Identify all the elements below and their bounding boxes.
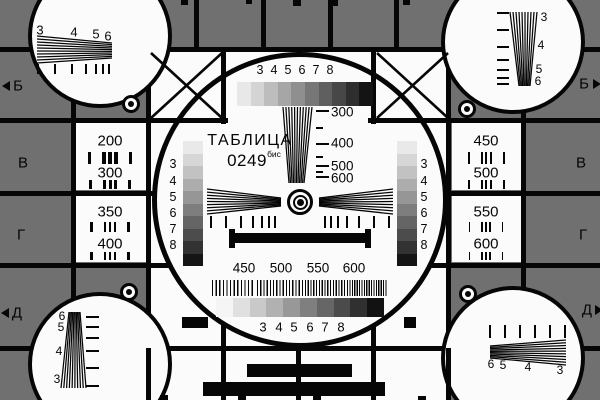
cell-600-tick [469, 252, 471, 260]
target-icon-bottom-right [459, 285, 477, 303]
grayscale-step [350, 298, 367, 317]
grayscale-step [183, 216, 203, 229]
cell-450-tick [503, 152, 505, 164]
bot-ramp-4-label: 4 [275, 321, 282, 334]
cell-600-tick [485, 252, 487, 260]
grayscale-step [397, 254, 417, 267]
tr-ticks [497, 77, 509, 79]
mid-left-fan-line [207, 202, 281, 203]
leftcol-4-label: 4 [170, 175, 177, 188]
mid-left-ticks [268, 216, 270, 228]
mid-left-ticks [225, 216, 227, 228]
scale-ticks-long [316, 110, 329, 112]
cell-400-tick [114, 252, 117, 260]
grayscale-step [278, 82, 292, 106]
grayscale-step [397, 179, 417, 192]
cell-350-label: 350 [97, 205, 122, 220]
tl-wedge-5-label: 5 [92, 28, 99, 41]
mid-right-ticks [330, 216, 332, 228]
scale-ticks-short [316, 171, 323, 173]
top-ramp-5-label: 5 [285, 64, 292, 77]
tl-ticks [95, 64, 97, 74]
cell-550-tick [485, 222, 487, 232]
cell-200-tick [108, 152, 112, 164]
bottom-grayscale-ramp [216, 298, 384, 317]
top-ramp-7-label: 7 [313, 64, 320, 77]
cell-350-tick [127, 222, 130, 232]
bl-wedge-3-label: 3 [54, 373, 61, 385]
rightcol-6-label: 6 [421, 207, 428, 220]
rightcol-8-label: 8 [421, 239, 428, 252]
cell-350-tick [114, 222, 117, 232]
card-number: 0249 [227, 151, 267, 171]
right-col-grayscale-ramp [397, 141, 417, 266]
grayscale-step [397, 229, 417, 242]
grayscale-step [183, 204, 203, 217]
right-arrow-icon [593, 79, 600, 89]
edge-fragment [313, 395, 321, 400]
grayscale-step [305, 82, 319, 106]
mid-right-ticks [358, 216, 360, 228]
grayscale-step [183, 154, 203, 167]
leftcol-8-label: 8 [170, 239, 177, 252]
edge-letter-undefined: В [576, 156, 586, 171]
cell-200-tick [88, 152, 92, 164]
grayscale-step [216, 298, 233, 317]
rightcol-3-label: 3 [421, 158, 428, 171]
grayscale-step [251, 82, 265, 106]
rightcol-5-label: 5 [421, 191, 428, 204]
grayscale-step [397, 191, 417, 204]
mid-550-label: 550 [307, 261, 330, 275]
edge-fragment [181, 0, 188, 5]
br-fan-line [490, 353, 566, 354]
grayscale-step [183, 241, 203, 254]
br-ticks [504, 325, 506, 338]
leftcol-7-label: 7 [170, 223, 177, 236]
cell-550-label: 550 [473, 205, 498, 220]
mid-left-ticks [252, 216, 254, 228]
bl-ticks [86, 337, 99, 339]
tr-wedge-3-label: 3 [541, 11, 548, 23]
scale-ticks-long [316, 176, 329, 178]
ibeam-cap [229, 229, 235, 248]
grating-segment [257, 280, 300, 296]
cell-350-tick [104, 222, 107, 232]
bot-ramp-7-label: 7 [321, 321, 328, 334]
edge-fragment [403, 0, 410, 5]
bl-wedge-4-label: 4 [56, 345, 63, 357]
edge-letter-undefined: Б [13, 79, 23, 94]
edge-letter-undefined: Д [12, 306, 22, 321]
tl-ticks [71, 64, 73, 74]
cell-600-tick [489, 252, 491, 260]
tr-wedge-4-label: 4 [538, 39, 545, 51]
tl-wedge-6-label: 6 [104, 30, 111, 43]
leftcol-6-label: 6 [170, 207, 177, 220]
cell-450-tick [481, 152, 483, 164]
cell-400-label: 400 [97, 237, 122, 252]
bottom-bar-1 [247, 364, 352, 377]
scale-ticks-long [316, 165, 329, 167]
grayscale-step [183, 191, 203, 204]
grating-segment [302, 280, 345, 296]
scale-ticks-short [316, 156, 323, 158]
bl-wedge-5-label: 5 [58, 321, 65, 333]
bot-ramp-6-label: 6 [306, 321, 313, 334]
left-rect [182, 317, 208, 328]
cell-300-tick [128, 180, 131, 189]
bot-ramp-5-label: 5 [290, 321, 297, 334]
edge-letter-undefined: Г [17, 228, 25, 243]
scale-600-label: 600 [331, 171, 354, 185]
br-ticks [564, 325, 566, 338]
leftcol-5-label: 5 [170, 191, 177, 204]
cell-500-label: 500 [473, 166, 498, 181]
edge-letter-undefined: Д [582, 303, 592, 318]
tr-wedge-6-label: 6 [535, 75, 542, 87]
scale-ticks-short [316, 127, 323, 129]
mid-left-ticks [261, 216, 263, 228]
cell-550-tick [481, 222, 483, 232]
grayscale-step [250, 298, 267, 317]
left-arrow-icon [2, 81, 10, 91]
grayscale-step [183, 166, 203, 179]
mid-right-ticks [324, 216, 326, 228]
leftcol-3-label: 3 [170, 158, 177, 171]
target-icon-bottom-left [120, 283, 138, 301]
edge-letter-undefined: Г [579, 228, 587, 243]
tr-ticks [497, 83, 509, 85]
cell-550-tick [502, 222, 504, 232]
cell-450-tick [490, 152, 492, 164]
edge-fragment [246, 0, 252, 4]
grating-segment [347, 280, 388, 296]
bl-ticks [86, 385, 99, 387]
edge-fragment [330, 0, 338, 6]
grayscale-step [266, 298, 283, 317]
br-wedge-6-label: 6 [488, 358, 495, 370]
br-wedge-5-label: 5 [500, 359, 507, 371]
cell-550-tick [489, 222, 491, 232]
grayscale-step [183, 179, 203, 192]
mid-600-label: 600 [343, 261, 366, 275]
cell-450-tick [485, 152, 487, 164]
grayscale-step [346, 82, 360, 106]
rightcol-4-label: 4 [421, 175, 428, 188]
tv-test-card-0249: ТАБЛИЦА 0249 бис 34563456654365433456783… [0, 0, 600, 400]
scale-300-label: 300 [331, 105, 354, 119]
tl-wedge-4-label: 4 [70, 26, 77, 39]
bl-ticks [86, 367, 99, 369]
grayscale-step [317, 298, 334, 317]
mid-right-ticks [337, 216, 339, 228]
mid-right-fan-line [319, 202, 393, 203]
top-ramp-6-label: 6 [299, 64, 306, 77]
tr-ticks [497, 59, 509, 61]
scale-400-label: 400 [331, 136, 354, 150]
grayscale-step [283, 298, 300, 317]
right-square [404, 317, 416, 328]
cell-450-tick [468, 152, 470, 164]
center-fan-line [297, 107, 298, 183]
scale-ticks-long [316, 143, 329, 145]
grayscale-step [397, 154, 417, 167]
br-ticks [549, 325, 551, 338]
grayscale-step [237, 82, 251, 106]
cell-500-tick [503, 180, 505, 189]
card-title: ТАБЛИЦА [207, 132, 292, 150]
grayscale-step [397, 216, 417, 229]
ibeam-bar [232, 233, 368, 243]
cell-500-tick [468, 180, 470, 189]
grayscale-step [397, 141, 417, 154]
ibeam-cap [365, 229, 371, 248]
cell-550-tick [469, 222, 471, 232]
tl-ticks [37, 64, 39, 74]
cell-200-tick [129, 152, 133, 164]
grayscale-step [291, 82, 305, 106]
cell-600-label: 600 [473, 237, 498, 252]
cell-600-tick [502, 252, 504, 260]
edge-fragment [293, 0, 301, 6]
tl-ticks [54, 64, 56, 74]
top-grayscale-ramp [237, 82, 373, 106]
grayscale-step [332, 82, 346, 106]
mid-450-label: 450 [233, 261, 256, 275]
grayscale-step [359, 82, 373, 106]
br-ticks [534, 325, 536, 338]
grayscale-step [183, 229, 203, 242]
grayscale-step [183, 254, 203, 267]
bl-ticks [86, 316, 99, 318]
cell-400-tick [109, 252, 112, 260]
mid-500-label: 500 [270, 261, 293, 275]
grayscale-step [264, 82, 278, 106]
bottom-bar-2 [203, 382, 385, 396]
grayscale-step [233, 298, 250, 317]
cell-600-tick [481, 252, 483, 260]
top-ramp-4-label: 4 [271, 64, 278, 77]
bot-ramp-8-label: 8 [337, 321, 344, 334]
cell-200-tick [114, 152, 118, 164]
br-wedge-3-label: 3 [557, 364, 564, 376]
edge-fragment [238, 396, 246, 400]
edge-fragment [160, 395, 168, 400]
grayscale-step [183, 141, 203, 154]
br-ticks [489, 325, 491, 338]
grayscale-step [334, 298, 351, 317]
tr-ticks [497, 46, 509, 48]
frequency-grating [212, 280, 388, 296]
grayscale-step [367, 298, 384, 317]
mid-right-ticks [388, 216, 390, 228]
tl-ticks [85, 64, 87, 74]
card-number-suffix: бис [267, 149, 281, 159]
cell-450-label: 450 [473, 134, 498, 149]
edge-letter-undefined: В [18, 156, 28, 171]
right-arrow-icon [595, 305, 600, 315]
target-icon-top-left [122, 95, 140, 113]
tl-ticks [102, 64, 104, 74]
br-wedge-4-label: 4 [525, 361, 532, 373]
tl-wedge-3-label: 3 [36, 24, 43, 37]
cell-300-tick [89, 180, 92, 189]
grayscale-step [319, 82, 333, 106]
grayscale-step [397, 241, 417, 254]
cell-400-tick [127, 252, 130, 260]
bl-ticks [86, 326, 99, 328]
cell-400-tick [104, 252, 107, 260]
tr-ticks [497, 69, 509, 71]
cell-350-tick [90, 222, 93, 232]
bl-ticks [86, 350, 99, 352]
grating-segment [212, 280, 255, 296]
cell-350-tick [109, 222, 112, 232]
mid-left-ticks [274, 216, 276, 228]
cell-300-label: 300 [97, 166, 122, 181]
mid-right-ticks [346, 216, 348, 228]
cell-400-tick [90, 252, 93, 260]
tl-fan-line [37, 48, 112, 50]
grayscale-step [300, 298, 317, 317]
edge-letter-undefined: Б [579, 77, 589, 92]
edge-fragment [418, 396, 426, 400]
bot-ramp-3-label: 3 [259, 321, 266, 334]
grayscale-step [397, 204, 417, 217]
tl-fan-line [37, 53, 112, 54]
mid-left-ticks [240, 216, 242, 228]
mid-right-ticks [373, 216, 375, 228]
top-ramp-3-label: 3 [257, 64, 264, 77]
tr-ticks [497, 29, 509, 31]
mid-left-ticks [210, 216, 212, 228]
top-ramp-8-label: 8 [327, 64, 334, 77]
tr-ticks [497, 12, 509, 14]
br-ticks [519, 325, 521, 338]
cell-200-tick [102, 152, 106, 164]
left-col-grayscale-ramp [183, 141, 203, 266]
cell-200-label: 200 [97, 134, 122, 149]
target-icon-top-right [458, 100, 476, 118]
left-arrow-icon [1, 308, 9, 318]
tl-ticks [108, 64, 110, 74]
rightcol-7-label: 7 [421, 223, 428, 236]
grayscale-step [397, 166, 417, 179]
